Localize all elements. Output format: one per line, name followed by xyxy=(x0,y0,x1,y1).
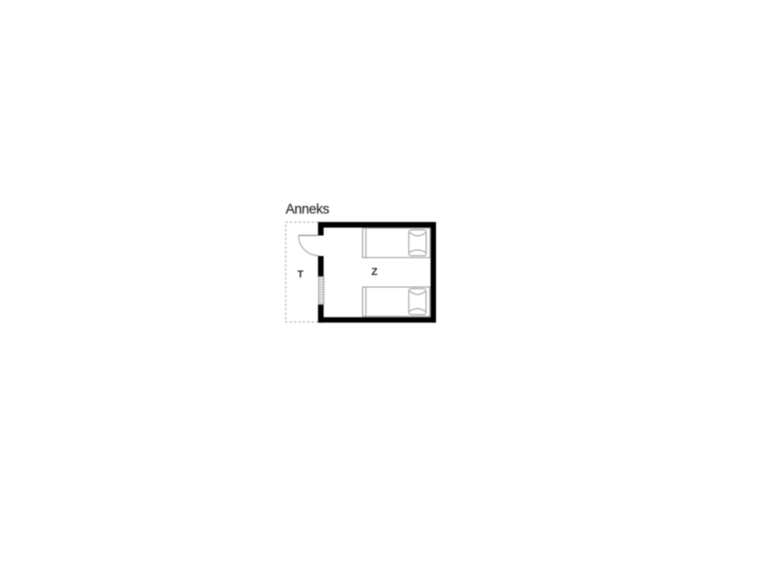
svg-text:Anneks: Anneks xyxy=(286,202,330,217)
svg-text:Z: Z xyxy=(371,267,377,278)
svg-text:T: T xyxy=(297,270,303,281)
